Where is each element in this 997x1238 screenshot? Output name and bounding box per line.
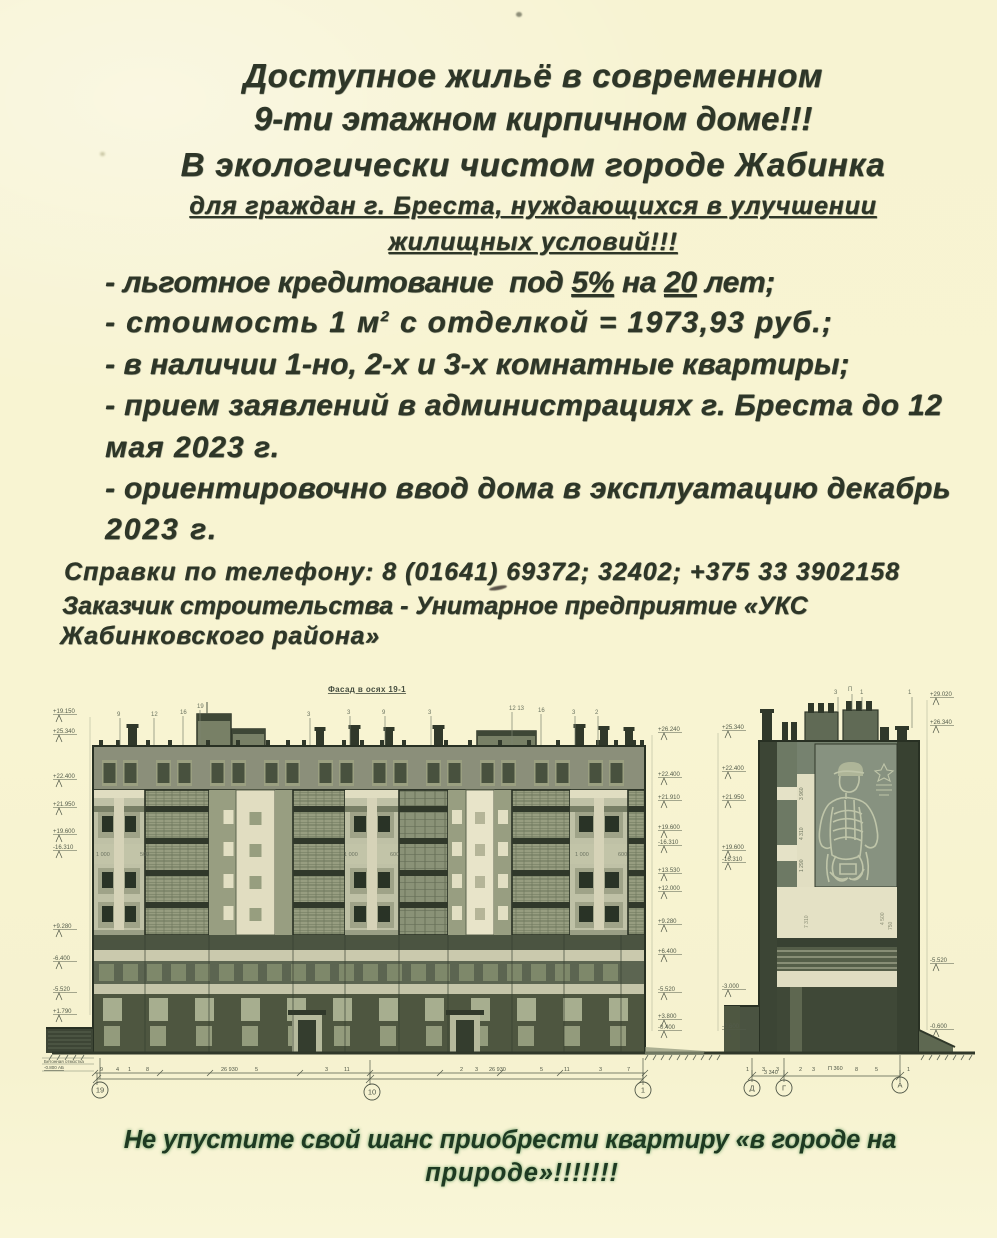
svg-text:+22.400: +22.400: [658, 772, 681, 778]
svg-text:16: 16: [538, 708, 545, 714]
svg-text:26 930: 26 930: [221, 1067, 238, 1073]
svg-text:1 000: 1 000: [96, 852, 110, 858]
svg-text:+21.950: +21.950: [722, 795, 745, 801]
svg-text:500: 500: [140, 852, 149, 858]
svg-text:-6.400: -6.400: [53, 956, 71, 962]
svg-text:Фасад в осях 19-1: Фасад в осях 19-1: [328, 685, 406, 694]
svg-text:+13.530: +13.530: [658, 868, 681, 874]
svg-text:1 000: 1 000: [575, 852, 589, 858]
svg-text:7 310: 7 310: [804, 915, 810, 928]
svg-text:-16.310: -16.310: [722, 857, 743, 863]
svg-text:3: 3: [812, 1067, 815, 1073]
svg-text:+25.340: +25.340: [53, 729, 76, 735]
svg-text:1: 1: [746, 1067, 749, 1073]
svg-text:1 000: 1 000: [344, 852, 358, 858]
svg-text:+21.950: +21.950: [53, 802, 76, 808]
svg-text:2: 2: [595, 710, 599, 716]
svg-text:5: 5: [540, 1067, 543, 1073]
svg-text:19: 19: [96, 1086, 104, 1095]
svg-text:+21.910: +21.910: [658, 795, 681, 801]
svg-text:750: 750: [888, 921, 894, 930]
svg-text:+19.600: +19.600: [658, 825, 681, 831]
svg-text:+3.800: +3.800: [658, 1014, 677, 1020]
svg-text:П 360: П 360: [828, 1066, 843, 1072]
svg-text:8: 8: [855, 1067, 858, 1073]
svg-text:+1.790: +1.790: [53, 1009, 72, 1015]
svg-text:Бетонная отмостка: Бетонная отмостка: [44, 1059, 84, 1064]
svg-text:3: 3: [475, 1067, 478, 1073]
svg-text:19: 19: [197, 704, 204, 710]
svg-text:+22.400: +22.400: [53, 774, 76, 780]
svg-text:3: 3: [834, 690, 838, 696]
svg-text:9: 9: [100, 1067, 103, 1073]
svg-text:П: П: [848, 687, 852, 693]
svg-text:3: 3: [572, 710, 576, 716]
svg-text:10: 10: [368, 1088, 376, 1097]
svg-text:-0.600: -0.600: [722, 1024, 740, 1030]
svg-text:2: 2: [460, 1067, 463, 1073]
svg-text:600: 600: [618, 852, 627, 858]
svg-text:1 290: 1 290: [799, 859, 805, 872]
svg-text:12: 12: [151, 712, 158, 718]
svg-text:8: 8: [146, 1067, 149, 1073]
svg-text:1: 1: [860, 690, 864, 696]
svg-text:-0.800 АБ: -0.800 АБ: [44, 1065, 64, 1070]
svg-text:3 960: 3 960: [799, 787, 805, 800]
svg-text:+19.600: +19.600: [53, 829, 76, 835]
svg-text:1: 1: [641, 1086, 645, 1095]
svg-text:5: 5: [875, 1067, 878, 1073]
svg-text:600: 600: [390, 852, 399, 858]
svg-text:2: 2: [799, 1067, 802, 1073]
svg-text:+6.400: +6.400: [658, 949, 677, 955]
svg-text:4: 4: [116, 1067, 119, 1073]
svg-text:3: 3: [428, 710, 432, 716]
svg-text:+22.400: +22.400: [722, 766, 745, 772]
svg-text:Д: Д: [749, 1084, 754, 1093]
svg-text:26 930: 26 930: [489, 1067, 506, 1073]
svg-text:+19.150: +19.150: [53, 709, 76, 715]
svg-text:+26.240: +26.240: [658, 727, 681, 733]
svg-text:7: 7: [627, 1067, 630, 1073]
svg-text:1: 1: [908, 690, 912, 696]
svg-text:3: 3: [599, 1067, 602, 1073]
svg-text:+25.340: +25.340: [722, 725, 745, 731]
svg-text:16: 16: [180, 710, 187, 716]
svg-text:-5.520: -5.520: [53, 987, 71, 993]
svg-text:+29.020: +29.020: [930, 692, 953, 698]
svg-text:5: 5: [255, 1067, 258, 1073]
svg-text:-16.310: -16.310: [53, 845, 74, 851]
svg-text:А: А: [897, 1081, 902, 1090]
svg-text:3: 3: [347, 710, 351, 716]
svg-text:11: 11: [344, 1067, 350, 1073]
svg-text:-0.600: -0.600: [930, 1024, 948, 1030]
svg-text:-5.520: -5.520: [658, 987, 676, 993]
svg-text:9: 9: [117, 712, 121, 718]
svg-text:Г: Г: [782, 1084, 786, 1093]
svg-text:+9.280: +9.280: [658, 919, 677, 925]
svg-text:-16.310: -16.310: [658, 840, 679, 846]
svg-text:3: 3: [325, 1067, 328, 1073]
svg-text:-0.400: -0.400: [658, 1025, 676, 1031]
svg-text:4 310: 4 310: [799, 827, 805, 840]
svg-text:1: 1: [907, 1067, 910, 1073]
svg-text:11: 11: [564, 1067, 570, 1073]
svg-text:1: 1: [128, 1067, 131, 1073]
svg-text:4 500: 4 500: [880, 912, 886, 925]
svg-text:3 340: 3 340: [764, 1070, 778, 1076]
svg-text:+9.280: +9.280: [53, 924, 72, 930]
svg-text:+12.000: +12.000: [658, 886, 681, 892]
svg-text:12 13: 12 13: [509, 706, 525, 712]
svg-text:3: 3: [307, 712, 311, 718]
svg-text:9: 9: [382, 710, 386, 716]
svg-text:-3.000: -3.000: [722, 984, 740, 990]
svg-text:-5.520: -5.520: [930, 958, 948, 964]
svg-text:+26.340: +26.340: [930, 720, 953, 726]
svg-text:+19.600: +19.600: [722, 845, 745, 851]
